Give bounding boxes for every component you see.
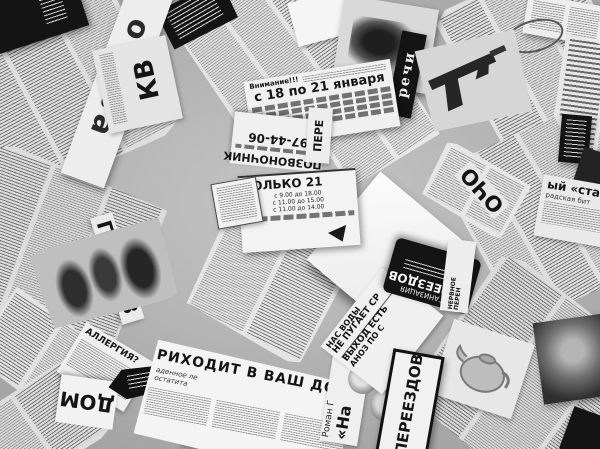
portrait-photo-scrap [533, 313, 600, 404]
black-triangle [328, 225, 352, 246]
small-ad-box [210, 176, 263, 229]
pere-headline: ПЕРЕ [305, 107, 333, 164]
dom-headline-scrap: ДОМ [55, 374, 119, 430]
dom-headline: ДОМ [55, 374, 119, 430]
kv-scrap: КВ [92, 35, 183, 134]
teapot-icon [441, 331, 525, 406]
handgun-icon [422, 36, 527, 124]
kv-headline: КВ [130, 56, 165, 102]
text-column [216, 182, 258, 224]
newsprint-columns [212, 178, 263, 229]
white-text-texture [37, 0, 68, 25]
newspaper-collage-photo: осква КВ речи Внимание!!! с 18 по 21 янв… [0, 0, 600, 449]
pere-strip: ПЕРЕ [305, 107, 333, 164]
text-column [211, 400, 279, 440]
text-column [143, 386, 211, 426]
